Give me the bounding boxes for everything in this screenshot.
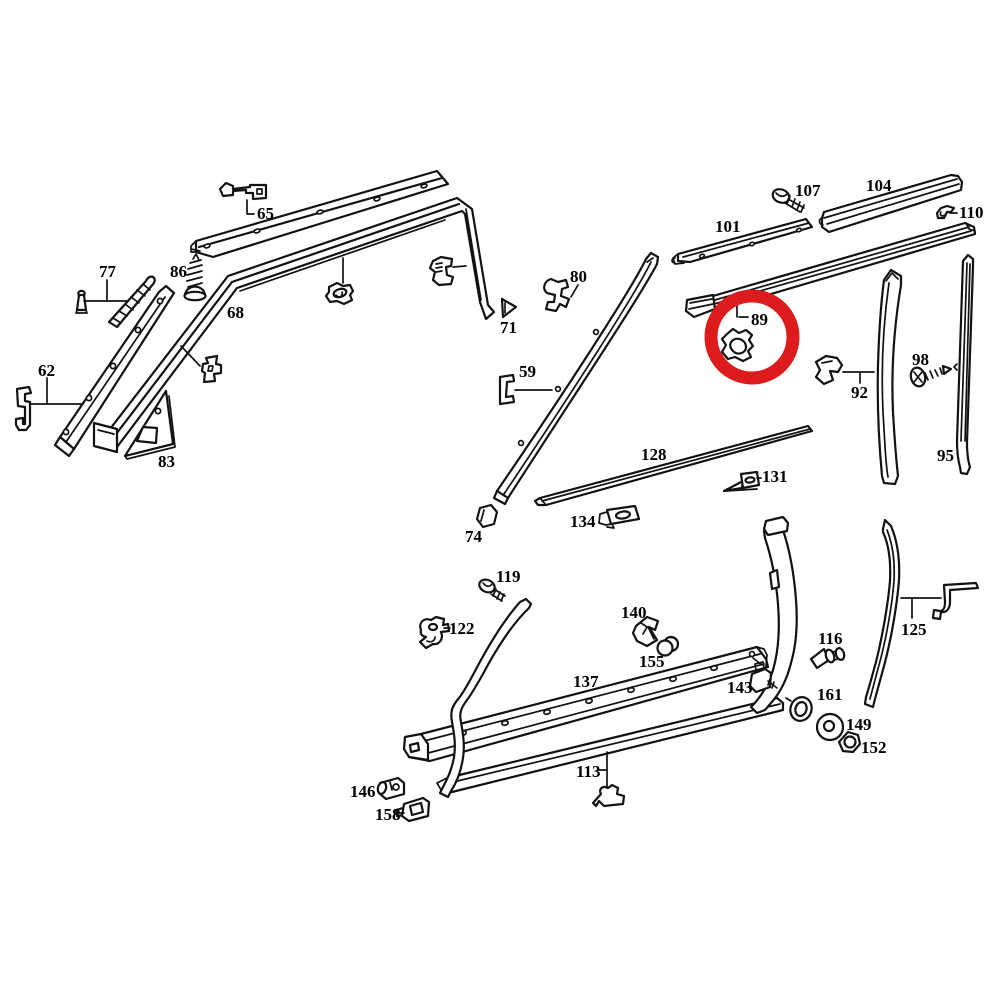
part-label-113: 113 (576, 762, 601, 781)
part-146-shape (377, 778, 404, 799)
part-label-116: 116 (818, 629, 843, 648)
part-label-125: 125 (901, 620, 927, 639)
part-label-71: 71 (500, 318, 517, 337)
part-label-107: 107 (795, 181, 821, 200)
part-59-bracket-shape (500, 375, 514, 404)
part-label-98: 98 (912, 350, 929, 369)
part-label-92: 92 (851, 383, 868, 402)
header-clip-shape (326, 283, 353, 304)
part-label-59: 59 (519, 362, 536, 381)
diagram-canvas: 6577866862837180597412813413110110710411… (0, 0, 1000, 1000)
part-95-shape (954, 255, 973, 474)
part-113-clip-shape (593, 785, 624, 806)
part-label-128: 128 (641, 445, 667, 464)
part-62-hook-shape (16, 387, 31, 430)
part-label-110: 110 (959, 203, 984, 222)
part-label-137: 137 (573, 672, 599, 691)
leg-clip-shape (430, 257, 453, 285)
part-77-pin-shape (76, 291, 87, 313)
part-131-shape (724, 472, 759, 491)
part-label-83: 83 (158, 452, 175, 471)
part-134-shape (599, 506, 639, 528)
part-label-68: 68 (227, 303, 244, 322)
part-label-62: 62 (38, 361, 55, 380)
part-label-74: 74 (465, 527, 483, 546)
part-113-shape (437, 698, 783, 795)
part-label-86: 86 (170, 262, 187, 281)
part-68-clip-shape (202, 356, 221, 382)
part-161-shape (786, 694, 815, 723)
part-label-161: 161 (817, 685, 843, 704)
part-92-strip-shape (878, 270, 901, 484)
part-101-shape (672, 219, 812, 264)
part-116-shape (811, 647, 846, 668)
part-125-bracket-shape (933, 583, 978, 619)
part-label-152: 152 (861, 738, 887, 757)
part-149-shape (817, 714, 843, 740)
part-label-119: 119 (496, 567, 521, 586)
part-152-shape (839, 732, 860, 752)
part-80-shape (544, 279, 569, 311)
part-label-146: 146 (350, 782, 376, 801)
part-label-122: 122 (449, 619, 475, 638)
part-74-shape (477, 505, 497, 527)
part-label-158: 158 (375, 805, 401, 824)
part-110-shape (937, 206, 954, 218)
part-125-strip-shape (865, 520, 899, 707)
part-label-95: 95 (937, 446, 954, 465)
part-89-shape (722, 329, 753, 361)
part-label-101: 101 (715, 217, 741, 236)
part-label-77: 77 (99, 262, 117, 281)
part-label-140: 140 (621, 603, 647, 622)
part-128-shape (535, 426, 812, 505)
part-label-155: 155 (639, 652, 665, 671)
part-158-shape (396, 798, 429, 821)
part-98-screw-shape (909, 366, 951, 388)
part-65-clip-shape (220, 183, 266, 199)
part-label-80: 80 (570, 267, 587, 286)
part-122-shape (420, 617, 449, 648)
part-86-screw-shape (185, 254, 206, 300)
part-label-131: 131 (762, 467, 788, 486)
part-label-65: 65 (257, 204, 274, 223)
part-label-134: 134 (570, 512, 596, 531)
part-label-89: 89 (751, 310, 768, 329)
part-71-shape (502, 299, 516, 317)
part-label-104: 104 (866, 176, 892, 195)
parts-diagram: 6577866862837180597412813413110110710411… (0, 0, 1000, 1000)
part-label-143: 143 (727, 678, 753, 697)
part-92-clip-shape (816, 356, 842, 384)
part-label-149: 149 (846, 715, 872, 734)
